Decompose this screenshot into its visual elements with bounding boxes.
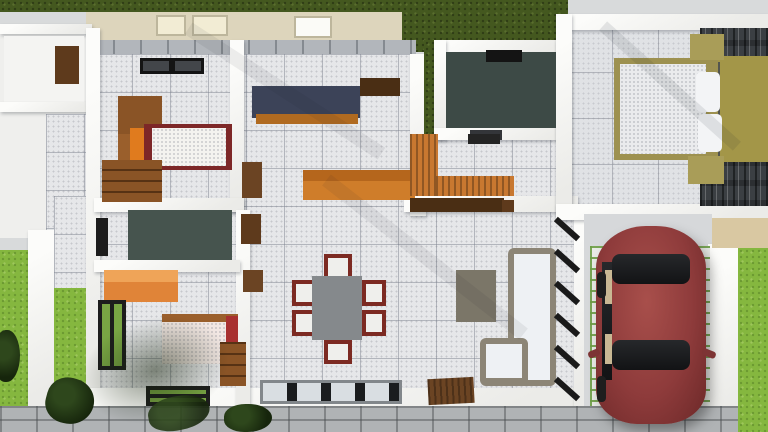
kitchen-wall-cabinet <box>360 78 400 96</box>
wall-niche-3 <box>243 270 263 292</box>
ceiling-light-panel <box>294 16 332 38</box>
master-nightstand-bottom <box>688 156 724 184</box>
car-wheel-front <box>597 376 606 402</box>
utility2-counter-left <box>410 134 438 196</box>
skylight-panel-1 <box>156 15 186 36</box>
master-nightstand-top <box>690 34 724 60</box>
car-seat-1 <box>605 270 612 304</box>
garage-wall-top-beige <box>712 218 768 248</box>
dining-chair-bottom <box>324 340 352 364</box>
wall-bath1-left <box>434 40 446 140</box>
tv-console <box>410 198 504 212</box>
bed2-ceiling-light <box>140 58 204 74</box>
bed2-dresser <box>102 160 162 202</box>
utility-wall-mid <box>0 102 92 112</box>
car-rear-glass <box>612 254 690 284</box>
dining-chair-right-2 <box>362 310 386 336</box>
house-plan-3d-render <box>0 0 768 432</box>
utility-wood-cabinet <box>55 46 79 84</box>
car-seat-2 <box>605 334 612 364</box>
wall-master-left <box>556 14 572 218</box>
bath2-floor <box>128 210 232 260</box>
wall-bath1-bottom <box>434 128 570 140</box>
bath1-floor <box>446 52 556 128</box>
car-front-glass <box>612 340 690 370</box>
car-wheel-rear <box>597 272 606 298</box>
bath1-skylight <box>486 50 522 62</box>
dining-table <box>312 276 362 340</box>
entry-door-mat <box>427 377 474 405</box>
bed3-wardrobe-top <box>104 270 178 282</box>
dining-window <box>260 380 402 404</box>
sofa-cushions-short <box>486 344 522 378</box>
utility2-shelf <box>468 134 500 144</box>
garage-wall-right <box>708 244 742 432</box>
ceiling-band <box>86 10 412 42</box>
utility-wall-top <box>0 24 92 34</box>
tv-console-step <box>502 200 514 212</box>
kitchen-island-top <box>303 170 415 181</box>
bath2-window <box>96 218 108 256</box>
wall-niche-2 <box>241 214 261 244</box>
wall-niche-1 <box>242 162 262 198</box>
lawn-right <box>738 248 768 432</box>
utility2-counter-bottom <box>436 176 514 196</box>
bed2-mattress <box>152 128 226 166</box>
dining-chair-right-1 <box>362 280 386 306</box>
